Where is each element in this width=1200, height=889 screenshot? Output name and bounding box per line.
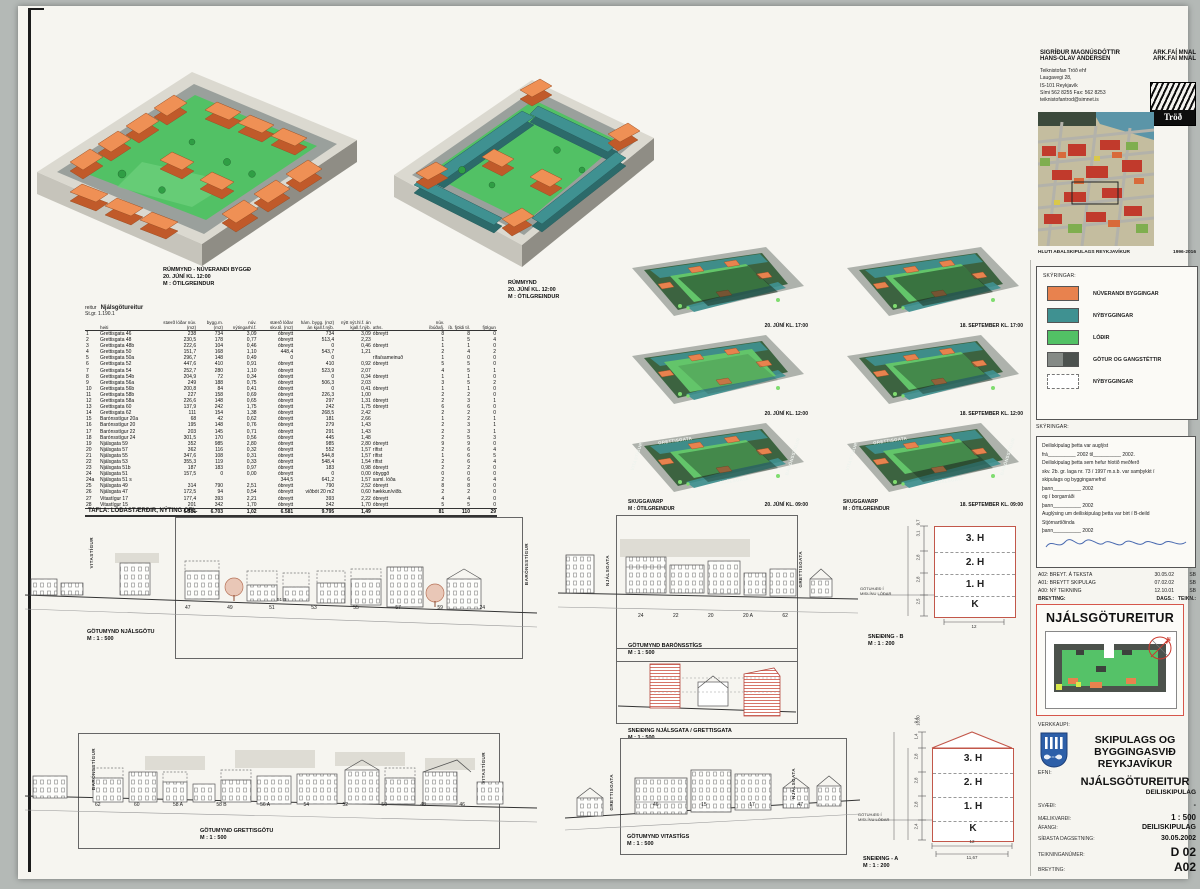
- caption-line: RÚMMYND - NÚVERANDI BYGGÐ: [163, 267, 251, 274]
- floor-label: K: [935, 599, 1015, 610]
- north-arrow-icon: N: [1146, 634, 1174, 662]
- revision-desc: A01: BREYTT SKIPULAG: [1038, 580, 1140, 586]
- shadow-panel-sept-17: 18. SEPTEMBER KL. 17:00: [843, 244, 1023, 320]
- legend-label: NÝBYGGINGAR: [1093, 379, 1133, 385]
- street-label-njalsgata: NJÁLSGATA: [791, 768, 796, 799]
- caption-scale: M : 1 : 500: [87, 636, 155, 643]
- subject-subtitle: DEILISKIPULAG: [1074, 789, 1196, 796]
- revision-col-label: BREYTING:: [1038, 596, 1140, 602]
- legend-label: GÖTUR OG GANGSTÉTTIR: [1093, 357, 1161, 363]
- field-value: DEILISKIPULAG: [1142, 824, 1196, 831]
- caption-scale: M : 1 : 500: [627, 841, 689, 848]
- dim-value: 2,8: [913, 754, 918, 760]
- floor-label: 3. H: [933, 753, 1013, 764]
- lot-number: 22: [673, 613, 679, 619]
- scale-label: M : ÓTILGREINDUR: [628, 506, 675, 513]
- revision-row: A01: BREYTT SKIPULAG07.02.02SB: [1038, 580, 1196, 586]
- revision-date: 30.05.02: [1140, 572, 1174, 578]
- elevation-baronsstigur: NJÁLSGATA GRETTISGATA 24222020 A62 GÖTUM…: [558, 515, 858, 665]
- lot-number: 24: [638, 613, 644, 619]
- legend-swatch: [1047, 286, 1079, 301]
- dim-value: 3,1: [915, 531, 920, 537]
- section-box: 3. H2. H1. HK: [932, 748, 1014, 842]
- section-caption: SNEIÐING - B M : 1 : 200: [868, 634, 903, 648]
- client-name-line: SKIPULAGS OG: [1074, 734, 1196, 746]
- revision-initials: SB: [1174, 580, 1196, 586]
- axon-proposed-caption: RÚMMYND 20. JÚNÍ KL. 12:00 M : ÓTILGREIN…: [508, 280, 559, 301]
- caption-title: GÖTUMYND GRETTISGÖTU: [200, 828, 273, 835]
- caption-scale: M : 1 : 500: [200, 835, 273, 842]
- field-label: TEIKNINGANÚMER:: [1038, 852, 1085, 858]
- revision-date: 12.10.01: [1140, 588, 1174, 594]
- lot-number: 17: [749, 802, 755, 808]
- dim-value: 2,8: [913, 778, 918, 784]
- logo-art: [1151, 83, 1195, 110]
- table-body: 1Grettisgata 462387343,09óbreytt7343,09ó…: [85, 331, 497, 509]
- client-name-line: BYGGINGASVIÐ: [1074, 746, 1196, 758]
- lot-number: 56 A: [260, 802, 270, 808]
- dim-value: 2,5: [915, 599, 920, 605]
- caption-line: 20. JÚNÍ KL. 12:00: [508, 287, 559, 294]
- revision-initials: SB: [1174, 572, 1196, 578]
- floor-label: 3. H: [935, 533, 1015, 544]
- field-value: -: [1194, 802, 1196, 809]
- shadow-panel-june-17: 20. JÚNÍ KL. 17:00: [628, 244, 808, 320]
- lot-number: 47: [797, 802, 803, 808]
- legend-item: GÖTUR OG GANGSTÉTTIR: [1047, 352, 1197, 367]
- approval-line: þann__________ 2002: [1042, 502, 1191, 511]
- shadow-art: [843, 244, 1023, 320]
- lot-table-block: reitur Njálsgötureitur St.gr. 1.190.1 he…: [85, 305, 503, 517]
- approval-line: Deiliskipulag þetta sem hefur hlotið með…: [1042, 459, 1191, 468]
- legend-item: LÓÐIR: [1047, 330, 1197, 345]
- dim-width: 12: [944, 624, 1004, 629]
- trod-logo: Tröð: [1150, 82, 1196, 126]
- logo-wordmark: Tröð: [1151, 110, 1195, 125]
- caption-line: RÚMMYND: [508, 280, 559, 287]
- table-row: 1Grettisgata 462387343,09óbreytt7343,09ó…: [85, 331, 497, 338]
- skuggavarp-label: SKUGGAVARP: [628, 499, 675, 506]
- elevation-drawing: [25, 738, 537, 823]
- legend-label: NÝBYGGINGAR: [1093, 313, 1133, 319]
- shadow-caption: 18. SEPTEMBER KL. 09:00: [960, 502, 1023, 508]
- field-row: SVÆÐI:-: [1038, 802, 1196, 809]
- lot-number: 52: [342, 802, 348, 808]
- caption-title: SNEIÐING NJÁLSGATA / GRETTISGATA: [628, 728, 732, 735]
- dim-value: 2,8: [915, 577, 920, 583]
- revision-header-row: BREYTING:DAGS.:TEIKN.:: [1038, 596, 1196, 602]
- lot-number: 20: [708, 613, 714, 619]
- street-label-vitastigur: VITASTÍGUR: [481, 752, 486, 783]
- lot-number: 15: [701, 802, 707, 808]
- project-title-box: NJÁLSGÖTUREITUR N: [1036, 604, 1184, 716]
- elevation-njalsgata: VITASTÍGUR BARÓNSSTÍGUR 51 B 47495153555…: [25, 515, 537, 660]
- dim-value: 2,8: [915, 555, 920, 561]
- legend-label: NÚVERANDI BYGGINGAR: [1093, 291, 1159, 297]
- map-caption: HLUTI AÐALSKIPULAGS REYKJAVÍKUR: [1038, 250, 1130, 255]
- shadow-art: [843, 420, 1023, 496]
- field-value: 1 : 500: [1171, 813, 1196, 822]
- caption-line: M : ÓTILGREINDUR: [508, 294, 559, 301]
- lot-numbers: 46151747: [653, 802, 803, 808]
- section-a: 3. H2. H1. HK 1,42,82,82,82,4 10,80 9,4 …: [858, 718, 1026, 868]
- elevation-caption: GÖTUMYND VITASTÍGS M : 1 : 500: [627, 834, 689, 848]
- approval-lines: Deiliskipulag þetta var auglýstfrá______…: [1042, 442, 1191, 536]
- revision-initials: SB: [1174, 588, 1196, 594]
- floor-line: [935, 574, 1015, 575]
- office-line: teiknistofantrod@simnet.is: [1040, 97, 1140, 104]
- shadow-panel-june-12: 20. JÚNÍ KL. 12:00: [628, 332, 808, 408]
- scale-label: M : ÓTILGREINDUR: [843, 506, 890, 513]
- approval-line: Auglýsing um deiliskipulag þetta var bir…: [1042, 510, 1191, 519]
- section-box: 3. H2. H1. HK: [934, 526, 1016, 618]
- caption-title: SNEIÐING - A: [863, 856, 898, 863]
- elevation-drawing: [25, 533, 537, 633]
- axon-proposed-drawing: [382, 30, 672, 280]
- map-years: 1996-2016: [1173, 250, 1196, 255]
- office-line: Teiknistofan Tröð ehf: [1040, 68, 1140, 75]
- approval-line: frá__________ 2002 til__________ 2002.: [1042, 451, 1191, 460]
- ground-note-line: MIÐLÍNU LÓÐAR: [858, 817, 889, 822]
- axon-existing-view: [22, 22, 372, 271]
- legend-title: SKÝRINGAR:: [1043, 273, 1197, 279]
- dim-value: 1,4: [913, 734, 918, 740]
- approval-line: Deiliskipulag þetta var auglýst: [1042, 442, 1191, 451]
- subject-label: EFNI:: [1038, 770, 1052, 776]
- floor-label: K: [933, 823, 1013, 834]
- revision-row: A02: BREYT. Á TEKSTA30.05.02SB: [1038, 572, 1196, 578]
- approval-line: skv. 2b. gr. laga nr. 73 / 1997 m.s.b. v…: [1042, 468, 1191, 477]
- ground-note-line: MIÐLÍNU LÓÐAR: [860, 591, 891, 596]
- field-row: TEIKNINGANÚMER:D 02: [1038, 845, 1196, 859]
- key-plan-box: N: [1045, 631, 1177, 709]
- office-address: Teiknistofan Tröð ehfLaugavegi 28,IS-101…: [1040, 68, 1140, 104]
- ground-note: GÖTUHÆÐ Í MIÐLÍNU LÓÐAR: [860, 586, 891, 596]
- dim-total: 9,7: [915, 520, 920, 526]
- lot-number: 54: [303, 802, 309, 808]
- axon-existing-drawing: [22, 22, 372, 266]
- office-line: IS-101 Reykjavík: [1040, 83, 1140, 90]
- titleblock-divider: [1030, 260, 1031, 876]
- office-line: Sími 562 8255 Fax: 562 8253: [1040, 90, 1140, 97]
- axon-existing-caption: RÚMMYND - NÚVERANDI BYGGÐ 20. JÚNÍ KL. 1…: [163, 267, 251, 288]
- legend-item: NÝBYGGINGAR: [1047, 374, 1197, 389]
- lot-number: 47: [185, 605, 191, 611]
- lot-number: 58 B: [216, 802, 226, 808]
- table-header-row: heitistærð lóðar núv. (m2)bygg.m. (m2)nú…: [85, 320, 497, 331]
- lot-numbers: 24222020 A62: [638, 613, 788, 619]
- ground-note: GÖTUHÆÐ Í MIÐLÍNU LÓÐAR: [858, 812, 889, 822]
- approval-line: skipulags og byggingarnefnd: [1042, 476, 1191, 485]
- caption-title: GÖTUMYND NJÁLSGÖTU: [87, 629, 155, 636]
- street-label-grettisgata: GRETTISGATA: [798, 551, 803, 588]
- subject-title: NJÁLSGÖTUREITUR: [1074, 776, 1196, 788]
- dim-width: 12: [932, 839, 1012, 844]
- skuggavarp-label: SKUGGAVARP: [843, 499, 890, 506]
- floor-line: [933, 797, 1013, 798]
- shadow-caption: 18. SEPTEMBER KL. 17:00: [960, 323, 1023, 329]
- floor-label: 2. H: [933, 777, 1013, 788]
- lot-number: 59: [437, 605, 443, 611]
- shadow-art: [628, 420, 808, 496]
- scanned-drawing-sheet: RÚMMYND - NÚVERANDI BYGGÐ 20. JÚNÍ KL. 1…: [0, 0, 1200, 889]
- caption-scale: M : 1 : 200: [863, 863, 898, 870]
- lot-number: 46: [653, 802, 659, 808]
- field-label: SÍÐASTA DAGSETNING:: [1038, 836, 1095, 842]
- legend-swatch: [1047, 330, 1079, 345]
- floor-label: 2. H: [935, 557, 1015, 568]
- legend-items: NÚVERANDI BYGGINGAR NÝBYGGINGAR LÓÐIR GÖ…: [1037, 286, 1197, 389]
- reykjavik-coat-of-arms: [1040, 732, 1068, 768]
- caption-scale: M : 1 : 200: [868, 641, 903, 648]
- lot-number: 55: [353, 605, 359, 611]
- section-drawing: [558, 648, 858, 728]
- caption-line: M : ÓTILGREINDUR: [163, 281, 251, 288]
- field-value-revision: A02: [1174, 860, 1196, 874]
- street-label-grettisgata: GRETTISGATA: [609, 774, 614, 811]
- floor-label: 1. H: [935, 579, 1015, 590]
- field-row: MÆLIKVARÐI:1 : 500: [1038, 813, 1196, 822]
- legend-item: NÚVERANDI BYGGINGAR: [1047, 286, 1197, 301]
- dim-value: 2,8: [913, 802, 918, 808]
- lot-number: 62: [782, 613, 788, 619]
- field-value-drawing-number: D 02: [1171, 845, 1196, 859]
- elevation-vitastigur: GRETTISGATA NJÁLSGATA 46151747 GÖTUMYND …: [565, 738, 860, 860]
- caption-line: 20. JÚNÍ KL. 12:00: [163, 274, 251, 281]
- shadow-panel-sept-12: 18. SEPTEMBER KL. 12:00: [843, 332, 1023, 408]
- dim-width2: 11,67: [936, 855, 1008, 860]
- notes-title: SKÝRINGAR:: [1036, 424, 1069, 430]
- field-label: SVÆÐI:: [1038, 803, 1056, 809]
- shadow-panel-sept-09: GRETTISGATA VITASTÍGUR BARÓNSSTÍGUR NJÁL…: [843, 420, 1023, 496]
- revision-col-label: DAGS.:: [1140, 596, 1174, 602]
- elevation-caption: GÖTUMYND GRETTISGÖTU M : 1 : 500: [200, 828, 273, 842]
- lot-numbers: 4749515355575924: [185, 605, 485, 611]
- revision-row: A00: NÝ TEIKNING12.10.01SB: [1038, 588, 1196, 594]
- project-title: NJÁLSGÖTUREITUR: [1037, 611, 1183, 625]
- shadow-caption: 20. JÚNÍ KL. 17:00: [765, 323, 808, 329]
- street-label-baronsstigur: BARÓNSSTÍGUR: [91, 748, 96, 790]
- scan-corner-artifact: [28, 8, 44, 10]
- lot-number: 60: [134, 802, 140, 808]
- lot-number: 48: [420, 802, 426, 808]
- revision-col-label: TEIKN.:: [1174, 596, 1196, 602]
- street-label-vitastigur: VITASTÍGUR: [89, 537, 94, 568]
- revision-desc: A00: NÝ TEIKNING: [1038, 588, 1140, 594]
- revision-desc: A02: BREYT. Á TEKSTA: [1038, 572, 1140, 578]
- legend-label: LÓÐIR: [1093, 335, 1109, 341]
- shadow-caption: 20. JÚNÍ KL. 12:00: [765, 411, 808, 417]
- approval-line: og í borgarráði: [1042, 493, 1191, 502]
- shadow-panel-june-09: GRETTISGATA VITASTÍGUR BARÓNSSTÍGUR NJÁL…: [628, 420, 808, 496]
- lot-number: 24: [479, 605, 485, 611]
- architect-row: HANS-OLAV ANDERSEN ARK.FAÍ MNAL: [1040, 56, 1196, 62]
- lot-number: 58 A: [173, 802, 183, 808]
- svg-text:N: N: [1167, 637, 1171, 643]
- floor-line: [933, 773, 1013, 774]
- field-label: MÆLIKVARÐI:: [1038, 816, 1071, 822]
- legend-swatch: [1047, 374, 1079, 389]
- street-label-njalsgata: NJÁLSGATA: [605, 555, 610, 586]
- section-caption: SNEIÐING - A M : 1 : 200: [863, 856, 898, 870]
- field-label: ÁFANGI:: [1038, 825, 1058, 831]
- lot-number: 46: [459, 802, 465, 808]
- street-label-baronsstigur: BARÓNSSTÍGUR: [524, 543, 529, 585]
- signature: [1042, 536, 1190, 552]
- lot-number: 53: [311, 605, 317, 611]
- lot-numbers: 626058 A58 B56 A5452504846: [95, 802, 465, 808]
- field-label: BREYTING:: [1038, 867, 1065, 873]
- legend-swatch: [1047, 352, 1079, 367]
- caption-title: SNEIÐING - B: [868, 634, 903, 641]
- dim-total2: 9,4: [913, 718, 918, 724]
- lot-number: 20 A: [743, 613, 753, 619]
- approval-line: þann__________ 2002: [1042, 485, 1191, 494]
- legend-item: NÝBYGGINGAR: [1047, 308, 1197, 323]
- lot-note: 51 B: [277, 597, 286, 602]
- field-value: 30.05.2002: [1161, 835, 1196, 842]
- table-subtitle: St.gr. 1.190.1: [85, 311, 503, 317]
- shadow-caption: 20. JÚNÍ KL. 09:00: [765, 502, 808, 508]
- field-row: ÁFANGI:DEILISKIPULAG: [1038, 824, 1196, 831]
- elevation-grettisgata: BARÓNSSTÍGUR VITASTÍGUR 626058 A58 B56 A…: [25, 730, 537, 855]
- lot-number: 62: [95, 802, 101, 808]
- shadow-caption: 18. SEPTEMBER KL. 12:00: [960, 411, 1023, 417]
- map-caption-row: HLUTI AÐALSKIPULAGS REYKJAVÍKUR 1996-201…: [1038, 250, 1196, 255]
- dim-value: 2,4: [913, 824, 918, 830]
- section-b: 3. H2. H1. HK 3,12,82,82,5 9,7 12 GÖTUHÆ…: [860, 520, 1028, 646]
- shadow-art: [628, 332, 808, 408]
- floor-line: [935, 552, 1015, 553]
- shadow-art: [628, 244, 808, 320]
- floor-label: 1. H: [933, 801, 1013, 812]
- approval-line: Stjórnartíðinda: [1042, 519, 1191, 528]
- architect-name: HANS-OLAV ANDERSEN: [1040, 56, 1110, 62]
- client-label: VERKKAUPI:: [1038, 722, 1070, 728]
- office-line: Laugavegi 28,: [1040, 75, 1140, 82]
- lot-number: 50: [381, 802, 387, 808]
- section-cut: SNEIÐING NJÁLSGATA / GRETTISGATA M : 1 :…: [558, 648, 858, 743]
- shadow-caption-left: SKUGGAVARP M : ÓTILGREINDUR: [628, 499, 675, 513]
- lot-number: 51: [269, 605, 275, 611]
- approval-line: þann__________ 2002: [1042, 527, 1191, 536]
- floor-line: [935, 596, 1015, 597]
- elevation-caption: GÖTUMYND NJÁLSGÖTU M : 1 : 500: [87, 629, 155, 643]
- legend-swatch: [1047, 308, 1079, 323]
- legend-box: SKÝRINGAR: NÚVERANDI BYGGINGAR NÝBYGGING…: [1036, 266, 1198, 420]
- client-name-line: REYKJAVÍKUR: [1074, 758, 1196, 770]
- lot-table: heitistærð lóðar núv. (m2)bygg.m. (m2)nú…: [85, 320, 497, 517]
- revision-date: 07.02.02: [1140, 580, 1174, 586]
- lot-number: 49: [227, 605, 233, 611]
- lot-number: 57: [395, 605, 401, 611]
- subject-block: NJÁLSGÖTUREITUR DEILISKIPULAG: [1074, 776, 1196, 796]
- architect-title: ARK.FAÍ MNAL: [1153, 56, 1196, 62]
- caption-title: GÖTUMYND VITASTÍGS: [627, 834, 689, 841]
- shadow-caption-left: SKUGGAVARP M : ÓTILGREINDUR: [843, 499, 890, 513]
- shadow-art: [843, 332, 1023, 408]
- field-row: SÍÐASTA DAGSETNING:30.05.2002: [1038, 835, 1196, 842]
- floor-line: [933, 821, 1013, 822]
- approval-notes-box: Deiliskipulag þetta var auglýstfrá______…: [1036, 436, 1196, 568]
- client-name: SKIPULAGS OG BYGGINGASVIÐ REYKJAVÍKUR: [1074, 734, 1196, 770]
- field-row: BREYTING:A02: [1038, 860, 1196, 874]
- masterplan-map-thumbnail: [1038, 112, 1154, 246]
